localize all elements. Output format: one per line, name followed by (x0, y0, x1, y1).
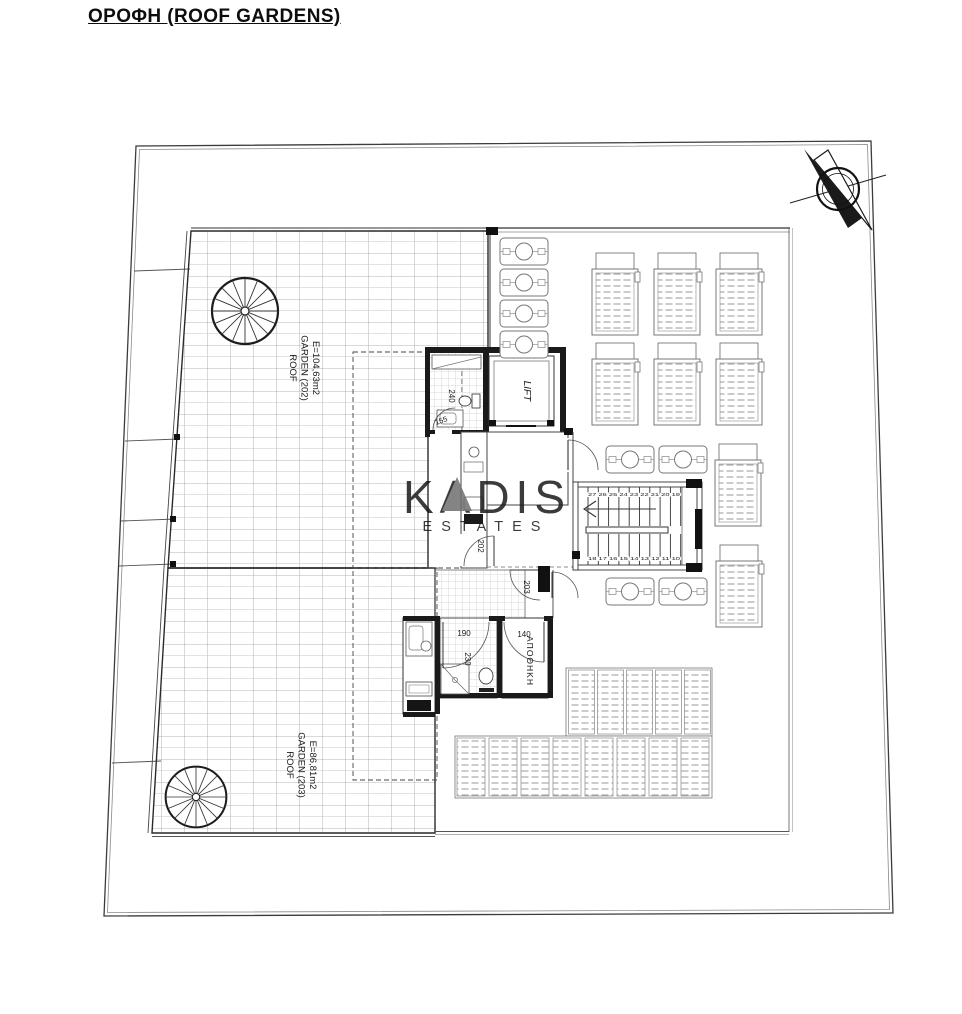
toilet (459, 396, 471, 406)
stair-numbers-lower: 18 17 16 15 14 13 12 11 10 (588, 556, 681, 561)
lower-core: 190 230 140 ΑΠΟΘΗΚΗ (403, 616, 553, 717)
sun-lounger (606, 578, 654, 605)
sun-lounger (716, 545, 764, 627)
floor-plan-svg: ROOF GARDEN (202) E=104,63m2 ROOF GARDEN… (0, 0, 962, 1014)
sun-lounger (592, 343, 640, 425)
upper-core: 240 155 LIFT (425, 347, 566, 437)
spiral-feature (212, 278, 278, 344)
garden-202-line3: E=104,63m2 (310, 341, 321, 395)
stair-landing-rail (586, 527, 668, 533)
sun-lounger (500, 238, 548, 265)
toilet (479, 668, 493, 684)
stairwell: 27 26 25 24 23 22 21 20 19 18 17 16 15 1… (572, 479, 702, 572)
tiled-landing (435, 570, 525, 618)
spiral-feature (166, 767, 227, 828)
deck-upper-columns (569, 670, 711, 734)
lift-room: LIFT (489, 356, 554, 426)
storage-label: ΑΠΟΘΗΚΗ (525, 636, 535, 686)
dim-240: 240 (447, 389, 456, 403)
sun-lounger (654, 343, 702, 425)
watermark: KADIS ESTATES (403, 471, 571, 535)
roof-garden-203: ROOF GARDEN (203) E=86,81m2 (148, 568, 437, 837)
door-number-202: 202 (476, 539, 485, 553)
lift-label: LIFT (521, 381, 532, 402)
basin (469, 447, 479, 457)
sun-lounger (654, 253, 702, 335)
garden-203-line3: E=86,81m2 (307, 741, 318, 790)
sun-lounger (715, 444, 763, 526)
stair-numbers-upper: 27 26 25 24 23 22 21 20 19 (588, 492, 681, 497)
garden-203-line1: ROOF (284, 751, 295, 779)
garden-202-line2: GARDEN (202) (299, 335, 310, 400)
sun-lounger (592, 253, 640, 335)
sun-lounger (659, 446, 707, 473)
garden-202-line1: ROOF (287, 354, 298, 382)
dim-190: 190 (457, 629, 471, 638)
sun-lounger (659, 578, 707, 605)
sun-lounger (500, 269, 548, 296)
sun-lounger (500, 331, 548, 358)
sun-lounger (500, 300, 548, 327)
sun-lounger (716, 343, 764, 425)
dim-230: 230 (463, 652, 472, 666)
door-number-203: 203 (522, 580, 531, 594)
sun-lounger (606, 446, 654, 473)
watermark-name: KADIS (403, 471, 571, 523)
door-arc-terrace (552, 572, 578, 598)
sun-lounger (716, 253, 764, 335)
watermark-subtitle: ESTATES (423, 519, 550, 535)
garden-203-line2: GARDEN (203) (296, 732, 307, 797)
